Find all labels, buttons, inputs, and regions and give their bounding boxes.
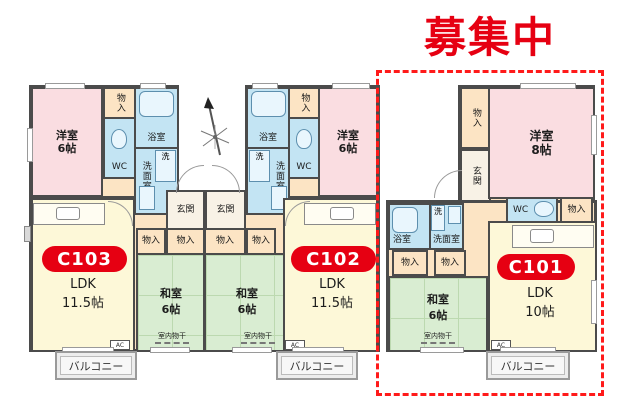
c102-unit-badge: C102 xyxy=(291,246,376,272)
c103-unit-badge: C103 xyxy=(42,246,127,272)
kitchen-sink-icon xyxy=(330,207,354,220)
north-arrow-icon xyxy=(193,95,233,160)
wc-label: WC xyxy=(112,162,127,173)
c102-balcony: バルコニー xyxy=(276,351,358,380)
toilet-icon xyxy=(296,129,312,149)
c102-entrance: 玄関 xyxy=(205,190,246,231)
window xyxy=(27,128,33,162)
c103-storage-b: 物入 xyxy=(166,228,205,255)
floor-plan: 募集中 洋室 6帖 物入 浴室 WC 洗面室 洗 玄関 物入 物入 和室 6帖 … xyxy=(0,0,640,420)
washer-box: 洗 xyxy=(155,150,176,182)
balcony-label: バルコニー xyxy=(290,358,345,374)
drying-label: 室内物干 xyxy=(158,333,186,341)
window xyxy=(252,83,278,89)
window xyxy=(140,83,166,89)
storage-label: 物入 xyxy=(176,236,194,247)
c102-storage-b: 物入 xyxy=(246,228,276,255)
c103-indoor-drying: 室内物干 xyxy=(142,333,202,344)
window xyxy=(332,83,370,89)
bath-label: 浴室 xyxy=(147,133,165,144)
c102-indoor-drying: 室内物干 xyxy=(228,333,288,344)
drying-label: 室内物干 xyxy=(244,333,272,341)
wc-label: WC xyxy=(296,162,311,173)
room-label: 洋室 xyxy=(56,129,78,142)
drying-pole-icon xyxy=(241,342,275,344)
balcony-label: バルコニー xyxy=(69,358,124,374)
storage-label: 物入 xyxy=(216,236,234,247)
c103-entrance-door-arc xyxy=(176,165,204,193)
c103-balcony: バルコニー xyxy=(55,351,137,380)
c102-storage-top: 物入 xyxy=(288,87,320,119)
bathtub-icon xyxy=(251,91,286,117)
window xyxy=(232,347,272,353)
c103-storage-a: 物入 xyxy=(136,228,166,255)
sink-icon xyxy=(139,186,155,210)
drying-pole-icon xyxy=(155,342,189,344)
washer-label: 洗 xyxy=(256,151,264,162)
window xyxy=(150,347,190,353)
c102-storage-a: 物入 xyxy=(204,228,246,255)
washer-label: 洗 xyxy=(162,151,170,162)
window xyxy=(45,83,85,89)
entrance-label: 玄関 xyxy=(176,205,194,216)
entrance-label: 玄関 xyxy=(216,205,234,216)
storage-label: 物入 xyxy=(142,236,160,247)
bathtub-icon xyxy=(139,91,174,117)
storage-label: 物入 xyxy=(252,236,270,247)
recruiting-banner: 募集中 xyxy=(424,4,556,65)
c103-entrance: 玄関 xyxy=(166,190,205,231)
bath-label: 浴室 xyxy=(259,133,277,144)
storage-label: 物入 xyxy=(114,93,125,113)
room-size: 6帖 xyxy=(58,142,77,155)
kitchen-sink-icon xyxy=(56,207,80,220)
storage-label: 物入 xyxy=(299,93,310,113)
c103-western-room: 洋室 6帖 xyxy=(31,87,103,197)
room-label: 洋室 xyxy=(337,129,359,142)
room-size: 6帖 xyxy=(339,142,358,155)
washer-box: 洗 xyxy=(249,150,270,182)
c103-storage-top: 物入 xyxy=(103,87,136,119)
recruiting-highlight-outline xyxy=(376,70,604,396)
meter-box xyxy=(24,226,31,242)
c102-entrance-door-arc xyxy=(212,165,240,193)
toilet-icon xyxy=(111,129,127,149)
c102-western-room: 洋室 6帖 xyxy=(318,87,378,197)
